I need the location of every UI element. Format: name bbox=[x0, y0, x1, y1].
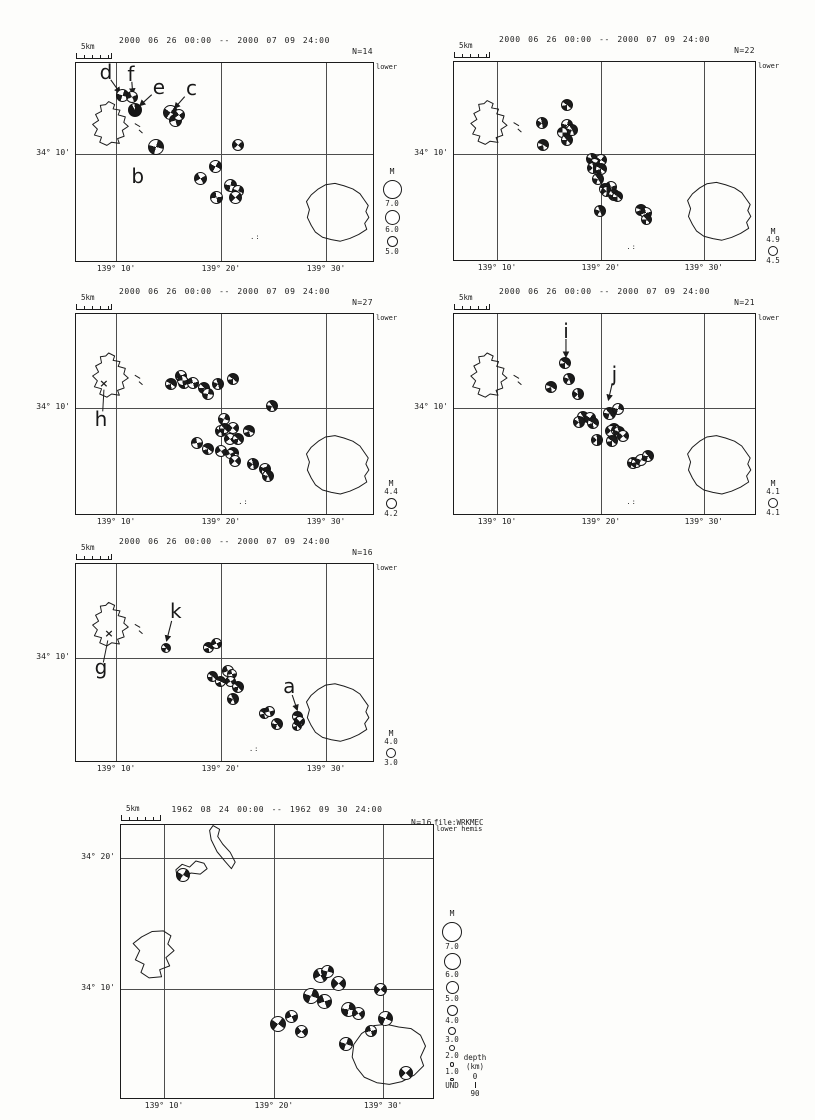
focal-mechanism-beachball bbox=[295, 1025, 308, 1038]
legend-label: 5.0 bbox=[445, 995, 459, 1003]
stray-dot-marks: .: bbox=[250, 234, 260, 242]
focal-mechanism-beachball bbox=[559, 357, 571, 369]
x-tick-label: 139° 10' bbox=[97, 518, 136, 527]
magnitude-legend: M4.14.1 bbox=[761, 479, 785, 517]
depth-legend-title: depth bbox=[464, 1053, 487, 1062]
annotation-letter-c: c bbox=[186, 77, 197, 99]
island-outline bbox=[688, 182, 751, 240]
islet-mark bbox=[139, 631, 143, 634]
annotation-letter-e: e bbox=[153, 76, 165, 98]
x-tick-label: 139° 30' bbox=[307, 765, 346, 774]
x-tick-label: 139° 30' bbox=[307, 518, 346, 527]
focal-mechanism-beachball bbox=[339, 1037, 353, 1051]
islet-mark bbox=[139, 130, 143, 133]
scalebar-label: 5km bbox=[81, 43, 95, 51]
island-outline bbox=[93, 102, 129, 146]
legend-label: 1.0 bbox=[445, 1068, 459, 1076]
y-tick-label: 34° 20' bbox=[81, 853, 115, 862]
panel-title: 2000 06 26 00:00 -- 2000 07 09 24:00 bbox=[119, 288, 330, 297]
depth-legend-unit: (km) bbox=[466, 1062, 484, 1071]
focal-mechanism-beachball bbox=[374, 983, 387, 996]
focal-mechanism-beachball bbox=[161, 643, 171, 653]
scalebar-label: 5km bbox=[459, 42, 473, 50]
map-panel-p6: 1962 08 24 00:00 -- 1962 09 30 24:00N=16… bbox=[120, 824, 434, 1099]
legend-circle bbox=[446, 981, 459, 994]
x-tick-label: 139° 10' bbox=[478, 264, 517, 273]
annotation-letter-f: f bbox=[127, 63, 134, 85]
focal-mechanism-beachball bbox=[378, 1011, 393, 1026]
legend-label: 2.0 bbox=[445, 1052, 459, 1060]
island-outline bbox=[306, 436, 368, 494]
annotation-arrow-e bbox=[140, 95, 152, 106]
islet-mark bbox=[518, 129, 522, 132]
legend-circle bbox=[447, 1005, 458, 1016]
legend-circle bbox=[387, 236, 398, 247]
annotation-letter-g: g bbox=[95, 656, 108, 678]
scale-bar bbox=[454, 304, 490, 310]
focal-mechanism-beachball bbox=[561, 99, 573, 111]
x-tick-label: 139° 10' bbox=[145, 1102, 184, 1111]
coastline-and-annotation-layer bbox=[76, 564, 373, 761]
x-tick-label: 139° 20' bbox=[202, 518, 241, 527]
legend-circle bbox=[386, 498, 397, 509]
y-tick-label: 34° 10' bbox=[414, 403, 448, 412]
islet-mark bbox=[514, 375, 519, 378]
islet-mark bbox=[135, 124, 140, 127]
legend-circle bbox=[442, 922, 462, 942]
map-panel-p4: 2000 06 26 00:00 -- 2000 07 09 24:00N=21… bbox=[453, 313, 756, 515]
legend-circle bbox=[448, 1027, 456, 1035]
stray-dot-marks: .: bbox=[249, 746, 259, 754]
legend-circle bbox=[383, 180, 402, 199]
annotation-letter-k: k bbox=[170, 600, 182, 622]
x-tick-label: 139° 10' bbox=[97, 765, 136, 774]
legend-circle bbox=[768, 498, 778, 508]
depth-legend-top-value: 0 bbox=[473, 1072, 478, 1081]
epicenter-x-marker-h: × bbox=[99, 378, 108, 390]
focal-mechanism-beachball bbox=[187, 377, 199, 389]
y-tick-label: 34° 10' bbox=[36, 653, 70, 662]
magnitude-legend: M4.03.0 bbox=[379, 729, 403, 767]
annotation-arrow-c bbox=[175, 97, 185, 108]
scalebar-label: 5km bbox=[459, 294, 473, 302]
focal-mechanism-beachball bbox=[210, 191, 223, 204]
y-tick-label: 34° 10' bbox=[81, 984, 115, 993]
annotation-letter-h: h bbox=[95, 408, 108, 430]
legend-lower-value: 4.2 bbox=[384, 510, 398, 518]
map-panel-p2: 2000 06 26 00:00 -- 2000 07 09 24:00N=22… bbox=[453, 61, 756, 261]
magnitude-legend: M4.94.5 bbox=[761, 227, 785, 265]
legend-label: 7.0 bbox=[445, 943, 459, 951]
focal-mechanism-beachball bbox=[227, 373, 239, 385]
island-outline bbox=[306, 183, 368, 241]
focal-mechanism-beachball bbox=[126, 91, 138, 103]
focal-mechanism-beachball bbox=[399, 1066, 413, 1080]
annotation-letter-a: a bbox=[283, 675, 295, 697]
x-tick-label: 139° 30' bbox=[364, 1102, 403, 1111]
depth-legend-bottom-value: 90 bbox=[470, 1089, 479, 1098]
hemisphere-label: lower bbox=[376, 565, 397, 573]
hemisphere-label: lower hemis bbox=[436, 826, 482, 834]
figure-root: 2000 06 26 00:00 -- 2000 07 09 24:00N=14… bbox=[0, 0, 815, 1120]
x-tick-label: 139° 10' bbox=[97, 265, 136, 274]
magnitude-legend: M7.06.05.0 bbox=[378, 167, 406, 256]
annotation-letter-d: d bbox=[100, 61, 113, 83]
focal-mechanism-beachball bbox=[591, 434, 603, 446]
event-count-label: N=27 bbox=[352, 299, 373, 308]
focal-mechanism-beachball bbox=[331, 976, 346, 991]
stray-dot-marks: .: bbox=[238, 499, 248, 507]
epicenter-x-marker-g: × bbox=[104, 628, 113, 640]
depth-legend: depth(km)090 bbox=[460, 1053, 490, 1099]
y-tick-label: 34° 10' bbox=[36, 149, 70, 158]
panel-title: 2000 06 26 00:00 -- 2000 07 09 24:00 bbox=[119, 538, 330, 547]
islet-mark bbox=[518, 382, 522, 385]
panel-title: 2000 06 26 00:00 -- 2000 07 09 24:00 bbox=[119, 37, 330, 46]
legend-lower-value: 3.0 bbox=[384, 759, 398, 767]
y-tick-label: 34° 10' bbox=[414, 149, 448, 158]
island-outline bbox=[471, 101, 507, 145]
scalebar-label: 5km bbox=[126, 805, 140, 813]
x-tick-label: 139° 20' bbox=[202, 765, 241, 774]
scale-bar bbox=[76, 304, 112, 310]
focal-mechanism-beachball bbox=[365, 1025, 377, 1037]
scale-bar bbox=[454, 52, 490, 58]
legend-lower-value: 4.1 bbox=[766, 509, 780, 517]
x-tick-label: 139° 30' bbox=[685, 264, 724, 273]
coastline-and-annotation-layer bbox=[121, 825, 433, 1098]
focal-mechanism-beachball bbox=[352, 1007, 365, 1020]
legend-label: UND bbox=[445, 1082, 459, 1090]
event-count-label: N=22 bbox=[734, 47, 755, 56]
island-outline bbox=[210, 826, 236, 869]
island-outline bbox=[471, 353, 507, 397]
focal-mechanism-beachball bbox=[545, 381, 557, 393]
focal-mechanism-beachball bbox=[563, 373, 575, 385]
islet-mark bbox=[514, 123, 519, 126]
scale-bar bbox=[76, 53, 112, 59]
legend-lower-value: 4.5 bbox=[766, 257, 780, 265]
focal-mechanism-beachball bbox=[321, 965, 334, 978]
focal-mechanism-beachball bbox=[176, 868, 190, 882]
x-tick-label: 139° 10' bbox=[478, 518, 517, 527]
legend-circle bbox=[444, 953, 461, 970]
legend-upper-value: 4.9 bbox=[766, 236, 780, 244]
island-outline bbox=[688, 436, 751, 494]
focal-mechanism-beachball bbox=[212, 378, 224, 390]
focal-mechanism-beachball bbox=[573, 416, 585, 428]
depth-legend-tick bbox=[475, 1082, 476, 1088]
focal-mechanism-beachball bbox=[612, 191, 623, 202]
map-panel-p1: 2000 06 26 00:00 -- 2000 07 09 24:00N=14… bbox=[75, 62, 374, 262]
panel-title: 2000 06 26 00:00 -- 2000 07 09 24:00 bbox=[499, 36, 710, 45]
hemisphere-label: lower bbox=[376, 64, 397, 72]
focal-mechanism-beachball bbox=[165, 378, 177, 390]
scale-bar bbox=[121, 815, 161, 821]
annotation-letter-i: i bbox=[563, 320, 569, 342]
island-outline bbox=[306, 684, 368, 742]
legend-circle bbox=[386, 748, 396, 758]
magnitude-legend: M4.44.2 bbox=[379, 479, 403, 518]
legend-circle bbox=[385, 210, 400, 225]
hemisphere-label: lower bbox=[376, 315, 397, 323]
legend-label: 6.0 bbox=[385, 226, 399, 234]
islet-mark bbox=[135, 375, 140, 378]
focal-mechanism-beachball bbox=[202, 443, 214, 455]
focal-mechanism-beachball bbox=[202, 388, 214, 400]
legend-label: 4.0 bbox=[445, 1017, 459, 1025]
x-tick-label: 139° 30' bbox=[685, 518, 724, 527]
annotation-letter-j: j bbox=[612, 363, 618, 385]
event-count-label: N=21 bbox=[734, 299, 755, 308]
island-outline bbox=[93, 353, 129, 397]
focal-mechanism-beachball bbox=[285, 1010, 298, 1023]
scalebar-label: 5km bbox=[81, 544, 95, 552]
x-tick-label: 139° 30' bbox=[307, 265, 346, 274]
island-outline bbox=[133, 931, 174, 978]
focal-mechanism-beachball bbox=[561, 134, 573, 146]
legend-upper-value: 4.4 bbox=[384, 488, 398, 496]
focal-mechanism-beachball bbox=[317, 994, 332, 1009]
map-panel-p3: 2000 06 26 00:00 -- 2000 07 09 24:00N=27… bbox=[75, 313, 374, 515]
hemisphere-label: lower bbox=[758, 315, 779, 323]
legend-label: 6.0 bbox=[445, 971, 459, 979]
focal-mechanism-beachball bbox=[128, 103, 142, 117]
y-tick-label: 34° 10' bbox=[36, 403, 70, 412]
legend-upper-value: 4.0 bbox=[384, 738, 398, 746]
stray-dot-marks: .: bbox=[626, 244, 636, 252]
focal-mechanism-beachball bbox=[572, 388, 584, 400]
scalebar-label: 5km bbox=[81, 294, 95, 302]
magnitude-legend-title: M bbox=[390, 167, 395, 176]
annotation-letter-b: b bbox=[131, 165, 144, 187]
focal-mechanism-beachball bbox=[243, 425, 255, 437]
x-tick-label: 139° 20' bbox=[582, 264, 621, 273]
islet-mark bbox=[135, 624, 140, 627]
legend-upper-value: 4.1 bbox=[766, 488, 780, 496]
event-count-label: N=16 bbox=[352, 549, 373, 558]
focal-mechanism-beachball bbox=[148, 139, 164, 155]
legend-label: 5.0 bbox=[385, 248, 399, 256]
x-tick-label: 139° 20' bbox=[202, 265, 241, 274]
islet-mark bbox=[139, 382, 143, 385]
focal-mechanism-beachball bbox=[270, 1016, 286, 1032]
legend-circle bbox=[768, 246, 778, 256]
x-tick-label: 139° 20' bbox=[582, 518, 621, 527]
magnitude-legend-title: M bbox=[450, 909, 455, 918]
panel-title: 1962 08 24 00:00 -- 1962 09 30 24:00 bbox=[172, 806, 383, 815]
scale-bar bbox=[76, 554, 112, 560]
x-tick-label: 139° 20' bbox=[255, 1102, 294, 1111]
legend-label: 3.0 bbox=[445, 1036, 459, 1044]
island-outline bbox=[352, 1024, 425, 1084]
panel-title: 2000 06 26 00:00 -- 2000 07 09 24:00 bbox=[499, 288, 710, 297]
annotation-arrow-k bbox=[167, 621, 172, 641]
hemisphere-label: lower bbox=[758, 63, 779, 71]
event-count-label: N=14 bbox=[352, 48, 373, 57]
focal-mechanism-beachball bbox=[587, 417, 599, 429]
legend-label: 7.0 bbox=[385, 200, 399, 208]
map-panel-p5: 2000 06 26 00:00 -- 2000 07 09 24:00N=16… bbox=[75, 563, 374, 762]
stray-dot-marks: .: bbox=[626, 499, 636, 507]
